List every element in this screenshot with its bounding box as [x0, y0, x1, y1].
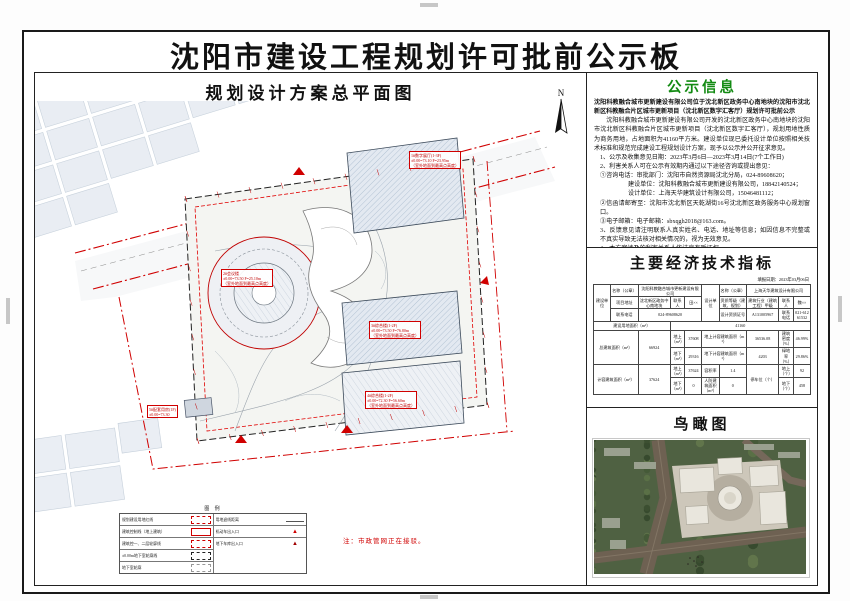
site-plan-panel: 规划设计方案总平面图 N	[35, 73, 586, 585]
econ-cell: 地下（m²）	[670, 347, 685, 364]
plot-stamp-left	[6, 298, 10, 324]
econ-cell: 29316	[685, 347, 702, 364]
plot-stamp-top	[420, 3, 438, 7]
legend-row: 用地退线距离	[214, 514, 307, 526]
econ-cell: 沈阳科教融合城市更新建设有限公司	[638, 285, 702, 297]
econ-fill-date: 填报日期：2023年03月06日	[593, 277, 809, 283]
econ-cell: 联系人	[779, 297, 794, 309]
econ-cell: 人防建筑面积（m²）	[702, 377, 719, 394]
building-label: 5#配套用房(1F)±0.00=73.30	[147, 405, 178, 418]
econ-cell: 沈北新区政务中心南地块	[638, 297, 670, 309]
legend-swatch-dim-line	[286, 521, 304, 522]
legend-swatch-red-dashed	[191, 540, 211, 548]
legend-row: 规划建设用地红线	[120, 514, 213, 526]
econ-cell: 46.99%	[793, 330, 810, 347]
econ-cell: 名称（公章）	[611, 285, 639, 297]
econ-cell: 地下（m²）	[670, 377, 685, 394]
legend-label: 地下室轮廓	[122, 565, 189, 571]
notice-item-2: 2、利害关系人可在公示有效期内通过以下途径咨询或提出意见：	[594, 163, 810, 172]
notice-item-3: 3、反馈意见请注明联系人真实姓名、电话、地址等信息；如因信息不完整或不真实导致无…	[594, 227, 810, 245]
legend-row: 机动车出入口▲	[214, 526, 307, 538]
econ-cell: 地下（个）	[779, 377, 794, 394]
econ-cell: 地上（m²）	[670, 365, 685, 377]
legend-left-column: 规划建设用地红线建筑控制线（地上建筑）建筑控一、二层轮廓线±0.00m地下室轮廓…	[120, 514, 213, 573]
building-label: 2#会议楼±0.00=73.50 F=25.10m（室外地面到最高点高度）	[221, 269, 273, 287]
aerial-view-section: 鸟瞰图	[587, 408, 817, 585]
legend-swatch-black-dashed	[191, 552, 211, 560]
aerial-title: 鸟瞰图	[592, 413, 812, 434]
econ-cell: 魏××	[793, 297, 810, 309]
legend-label: 用地退线距离	[216, 517, 285, 523]
legend-right-column: 用地退线距离机动车出入口▲地下车库出入口▲	[213, 514, 307, 573]
notice-mail-address: ②信函请邮寄至：沈阳市沈北新区天乾湖街16号沈北新区政务服务中心规划窗口。	[594, 200, 810, 218]
building-5	[184, 398, 213, 418]
econ-cell: 绿地率（%）	[779, 347, 794, 364]
econ-cell: 37608	[685, 330, 702, 347]
econ-cell: 容积率	[702, 365, 719, 377]
econ-cell: 资质等级（建筑、规划）	[719, 297, 747, 309]
econ-cell: 4203	[747, 347, 779, 364]
econ-cell: 建筑密度（%）	[779, 330, 794, 347]
legend-swatch-red-solid	[191, 528, 211, 536]
econ-cell: 37624	[638, 365, 670, 395]
econ-cell: 地上（个）	[779, 365, 794, 377]
econ-cell: 66924	[638, 330, 670, 365]
building-label: 4#综合楼(1-2F)±0.00=72.30 F=56.60m（室外地面到最高点…	[365, 391, 417, 409]
econ-cell: 上海天华建筑设计有限公司	[747, 285, 811, 297]
notice-title: 公示信息	[594, 76, 810, 97]
site-plan-drawing	[35, 101, 586, 513]
notice-body: 沈阳科教融合城市更新建设有限公司开发的沈北新区政务中心南地块的沈阳市沈北新区科教…	[594, 117, 810, 154]
legend-swatch-red-dashed-bold	[191, 516, 211, 524]
econ-cell: 名称（公章）	[719, 285, 747, 297]
aerial-rendering-image	[594, 440, 806, 574]
econ-cell: A131005967	[747, 309, 779, 321]
econ-cell: 联系电话	[611, 309, 639, 321]
legend-label: 建筑控制线（地上建筑）	[122, 529, 189, 535]
plot-stamp-right	[838, 296, 842, 322]
economic-indicators-section: 主要经济技术指标 填报日期：2023年03月06日 建设单位名称（公章）沈阳科教…	[587, 248, 817, 408]
plan-legend: 图 例 规划建设用地红线建筑控制线（地上建筑）建筑控一、二层轮廓线±0.00m地…	[119, 505, 307, 574]
econ-cell: 1.4	[719, 365, 747, 377]
legend-swatch-red-triangle: ▲	[286, 529, 304, 535]
econ-cell: 田××	[685, 297, 702, 309]
econ-cell: 联系人	[670, 297, 685, 309]
econ-cell: 地上计容建筑面积（m²）	[702, 330, 747, 347]
econ-cell: 37624	[685, 365, 702, 377]
notice-phone-approval: ①咨询电话：审批部门：沈阳市自然资源局沈北分局，024-89608620；	[594, 172, 810, 181]
notice-email: ③电子邮箱：电子邮箱：sbxqgh2018@163.com。	[594, 218, 810, 227]
legend-swatch-red-triangle-dark: ▲	[286, 541, 304, 547]
notice-project-heading: 沈阳科教融合城市更新建设有限公司位于沈北新区政务中心南地块的沈阳市沈北新区科教融…	[594, 99, 810, 117]
building-2-circle	[208, 237, 320, 349]
info-panel: 公示信息 沈阳科教融合城市更新建设有限公司位于沈北新区政务中心南地块的沈阳市沈北…	[586, 73, 817, 585]
econ-cell: 36536.08	[747, 330, 779, 347]
legend-row: 建筑控一、二层轮廓线	[120, 538, 213, 550]
econ-cell: 地下计容建筑面积（m²）	[702, 347, 747, 364]
legend-row: ±0.00m地下室轮廓线	[120, 550, 213, 562]
plot-stamp-bottom	[420, 595, 438, 599]
econ-title: 主要经济技术指标	[593, 252, 811, 273]
legend-label: ±0.00m地下室轮廓线	[122, 553, 189, 559]
north-letter: N	[558, 88, 565, 98]
aerial-rendering-frame	[592, 438, 810, 578]
econ-cell: 021-61261532	[793, 309, 810, 321]
content-frame: 规划设计方案总平面图 N	[34, 72, 818, 586]
econ-cell: 计容建筑面积（m²）	[594, 365, 639, 395]
notice-phone-designer: 设计单位：上海天华建筑设计有限公司，15046481112；	[594, 190, 810, 199]
econ-cell: 总建筑面积（m²）	[594, 330, 639, 365]
economic-indicators-table: 建设单位名称（公章）沈阳科教融合城市更新建设有限公司设计单位名称（公章）上海天华…	[593, 284, 811, 395]
context-parcels-lower	[35, 418, 168, 513]
econ-cell: 建设单位	[594, 285, 611, 322]
legend-label: 建筑控一、二层轮廓线	[122, 541, 189, 547]
notice-phone-builder: 建设单位：沈阳科教融合城市更新建设有限公司，18842140524；	[594, 181, 810, 190]
plan-note: 注：市政管网正在接驳。	[343, 535, 426, 545]
econ-cell: 设计单位	[702, 285, 719, 322]
econ-cell: 0	[685, 377, 702, 394]
econ-cell: 建设用地面积（m²）	[594, 321, 671, 330]
building-label: 1#数字展厅(1-3F)±0.00=73.10 F=23.95m（室外地面到最高…	[409, 151, 461, 169]
econ-cell: 458	[793, 377, 810, 394]
page-title: 沈阳市建设工程规划许可批前公示板	[24, 34, 828, 76]
legend-label: 地下车库出入口	[216, 541, 285, 547]
econ-cell: 建筑行业（建筑工程）甲级	[747, 297, 779, 309]
econ-cell: 0	[719, 377, 747, 394]
legend-swatch-gray-dashed	[191, 564, 211, 572]
legend-label: 规划建设用地红线	[122, 517, 189, 523]
econ-cell: 41160	[670, 321, 810, 330]
legend-row: 地下车库出入口▲	[214, 538, 307, 549]
notice-board-sheet: 沈阳市建设工程规划许可批前公示板 规划设计方案总平面图 N	[22, 30, 830, 594]
notice-item-1: 1、公示及收集意见日期：2023年3月6日—2023年3月14日(7个工作日)	[594, 154, 810, 163]
econ-cell: 联系电话	[779, 309, 794, 321]
econ-cell: 024-89608620	[638, 309, 702, 321]
econ-cell: 地上（m²）	[670, 330, 685, 347]
econ-cell: 停车位（个）	[747, 365, 779, 395]
road-redline-right	[487, 161, 507, 431]
legend-label: 机动车出入口	[216, 529, 285, 535]
econ-cell: 92	[793, 365, 810, 377]
legend-row: 地下室轮廓	[120, 562, 213, 573]
econ-cell: 设计资质证号	[719, 309, 747, 321]
public-notice-section: 公示信息 沈阳科教融合城市更新建设有限公司位于沈北新区政务中心南地块的沈阳市沈北…	[587, 73, 817, 248]
legend-row: 建筑控制线（地上建筑）	[120, 526, 213, 538]
legend-title: 图 例	[119, 505, 307, 512]
building-label: 3#综合楼(1-2F)±0.00=73.50 F=76.80m（室外地面到最高点…	[369, 321, 421, 339]
econ-cell: 项目地址	[611, 297, 639, 309]
econ-cell: 29.86%	[793, 347, 810, 364]
